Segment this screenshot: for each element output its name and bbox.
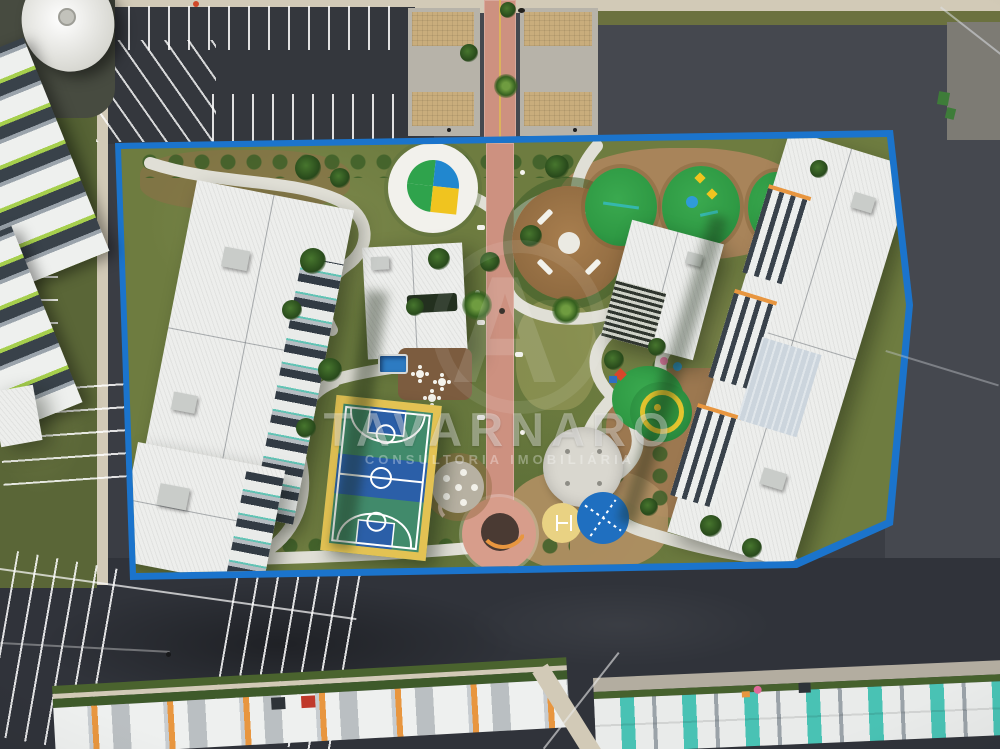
watermark-brand: TAVARNARO <box>0 402 1000 457</box>
tree <box>500 2 516 18</box>
bollard <box>447 128 451 132</box>
tree <box>852 540 868 556</box>
stools <box>455 484 462 491</box>
climber-toy <box>686 196 698 208</box>
tree <box>640 498 658 516</box>
post <box>565 481 570 486</box>
yellow-play-circle <box>542 503 582 543</box>
tree <box>330 168 350 188</box>
cone-marker <box>193 1 199 7</box>
logo-cell-yellow <box>430 186 459 215</box>
dotted-line <box>590 499 617 536</box>
tree <box>282 300 302 320</box>
bollard <box>573 128 577 132</box>
dark-unit <box>271 697 286 710</box>
logo-circle <box>388 143 478 233</box>
grass-strip-top <box>590 11 1000 25</box>
tree <box>742 538 762 558</box>
roof-unit <box>850 192 876 214</box>
logo-mark <box>404 157 461 214</box>
yellow-marker <box>706 188 717 199</box>
logo-cell-green-pill <box>404 183 433 212</box>
water-tower-cap <box>58 8 76 26</box>
aerial-photo: A TAVARNARO CONSULTORIA IMOBILIÁRIA <box>0 0 1000 749</box>
roof-unit <box>759 467 787 490</box>
seesaw-toy <box>603 202 639 210</box>
ladder-rung <box>556 522 568 524</box>
paver-square <box>524 12 592 46</box>
tactile-line <box>499 0 501 143</box>
logo-cell-blue-arch <box>433 160 462 189</box>
light-pole <box>520 170 525 175</box>
stall-lines <box>212 94 398 142</box>
tree <box>460 44 478 62</box>
roof-unit <box>221 247 250 272</box>
dumpster <box>937 91 950 106</box>
post <box>597 481 602 486</box>
logo-cell-green-arch <box>407 157 436 186</box>
concrete-corner-top-right <box>947 22 1000 140</box>
entry-pad-right <box>520 8 598 136</box>
orange-unit <box>742 691 750 697</box>
paver-square <box>412 92 474 126</box>
paver-square <box>412 12 474 46</box>
palm-tree <box>494 74 518 98</box>
tree <box>810 160 828 178</box>
yellow-marker <box>694 172 705 183</box>
tree <box>318 358 342 382</box>
tree <box>700 515 722 537</box>
watermark-tagline: CONSULTORIA IMOBILIÁRIA <box>0 452 1000 467</box>
tree <box>300 248 326 274</box>
tree <box>545 155 569 179</box>
manhole <box>518 8 525 13</box>
watermark-monogram: A <box>355 233 655 428</box>
bench <box>477 225 485 230</box>
entry-pad-left <box>408 8 480 136</box>
paver-square <box>524 92 592 126</box>
utility-pole <box>166 652 171 657</box>
tree <box>295 155 321 181</box>
red-unit <box>301 695 316 708</box>
dark-unit <box>798 683 810 694</box>
